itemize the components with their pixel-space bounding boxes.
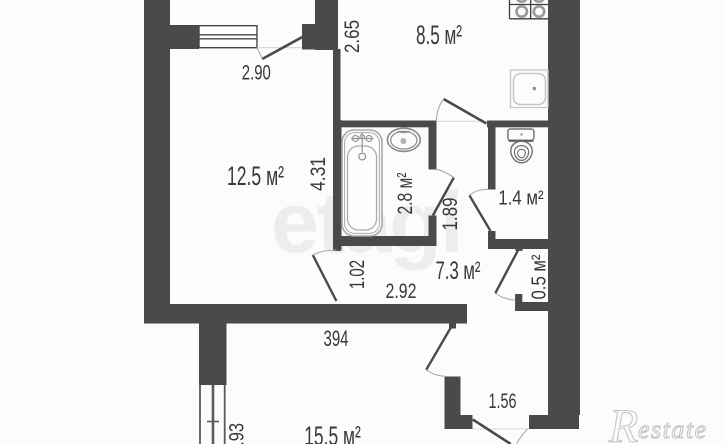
svg-text:7.3 м²: 7.3 м² [436, 257, 481, 285]
svg-text:1.02: 1.02 [346, 260, 369, 289]
svg-text:2.90: 2.90 [242, 62, 271, 85]
svg-text:estate: estate [638, 415, 708, 444]
svg-text:0.5 м²: 0.5 м² [529, 254, 551, 299]
svg-text:1.56: 1.56 [489, 389, 517, 413]
svg-text:12.5 м²: 12.5 м² [227, 161, 284, 191]
svg-text:394: 394 [324, 326, 349, 351]
svg-text:0.93: 0.93 [226, 423, 249, 444]
svg-text:4.31: 4.31 [307, 157, 330, 191]
svg-text:2.65: 2.65 [341, 20, 364, 53]
svg-text:R: R [608, 400, 638, 444]
svg-text:8.5 м²: 8.5 м² [416, 20, 462, 50]
svg-text:2.92: 2.92 [386, 280, 417, 303]
svg-text:15.5 м²: 15.5 м² [304, 421, 361, 444]
svg-text:1.89: 1.89 [439, 198, 462, 231]
svg-text:2.8 м²: 2.8 м² [394, 173, 417, 215]
svg-text:1.4 м²: 1.4 м² [498, 188, 544, 210]
